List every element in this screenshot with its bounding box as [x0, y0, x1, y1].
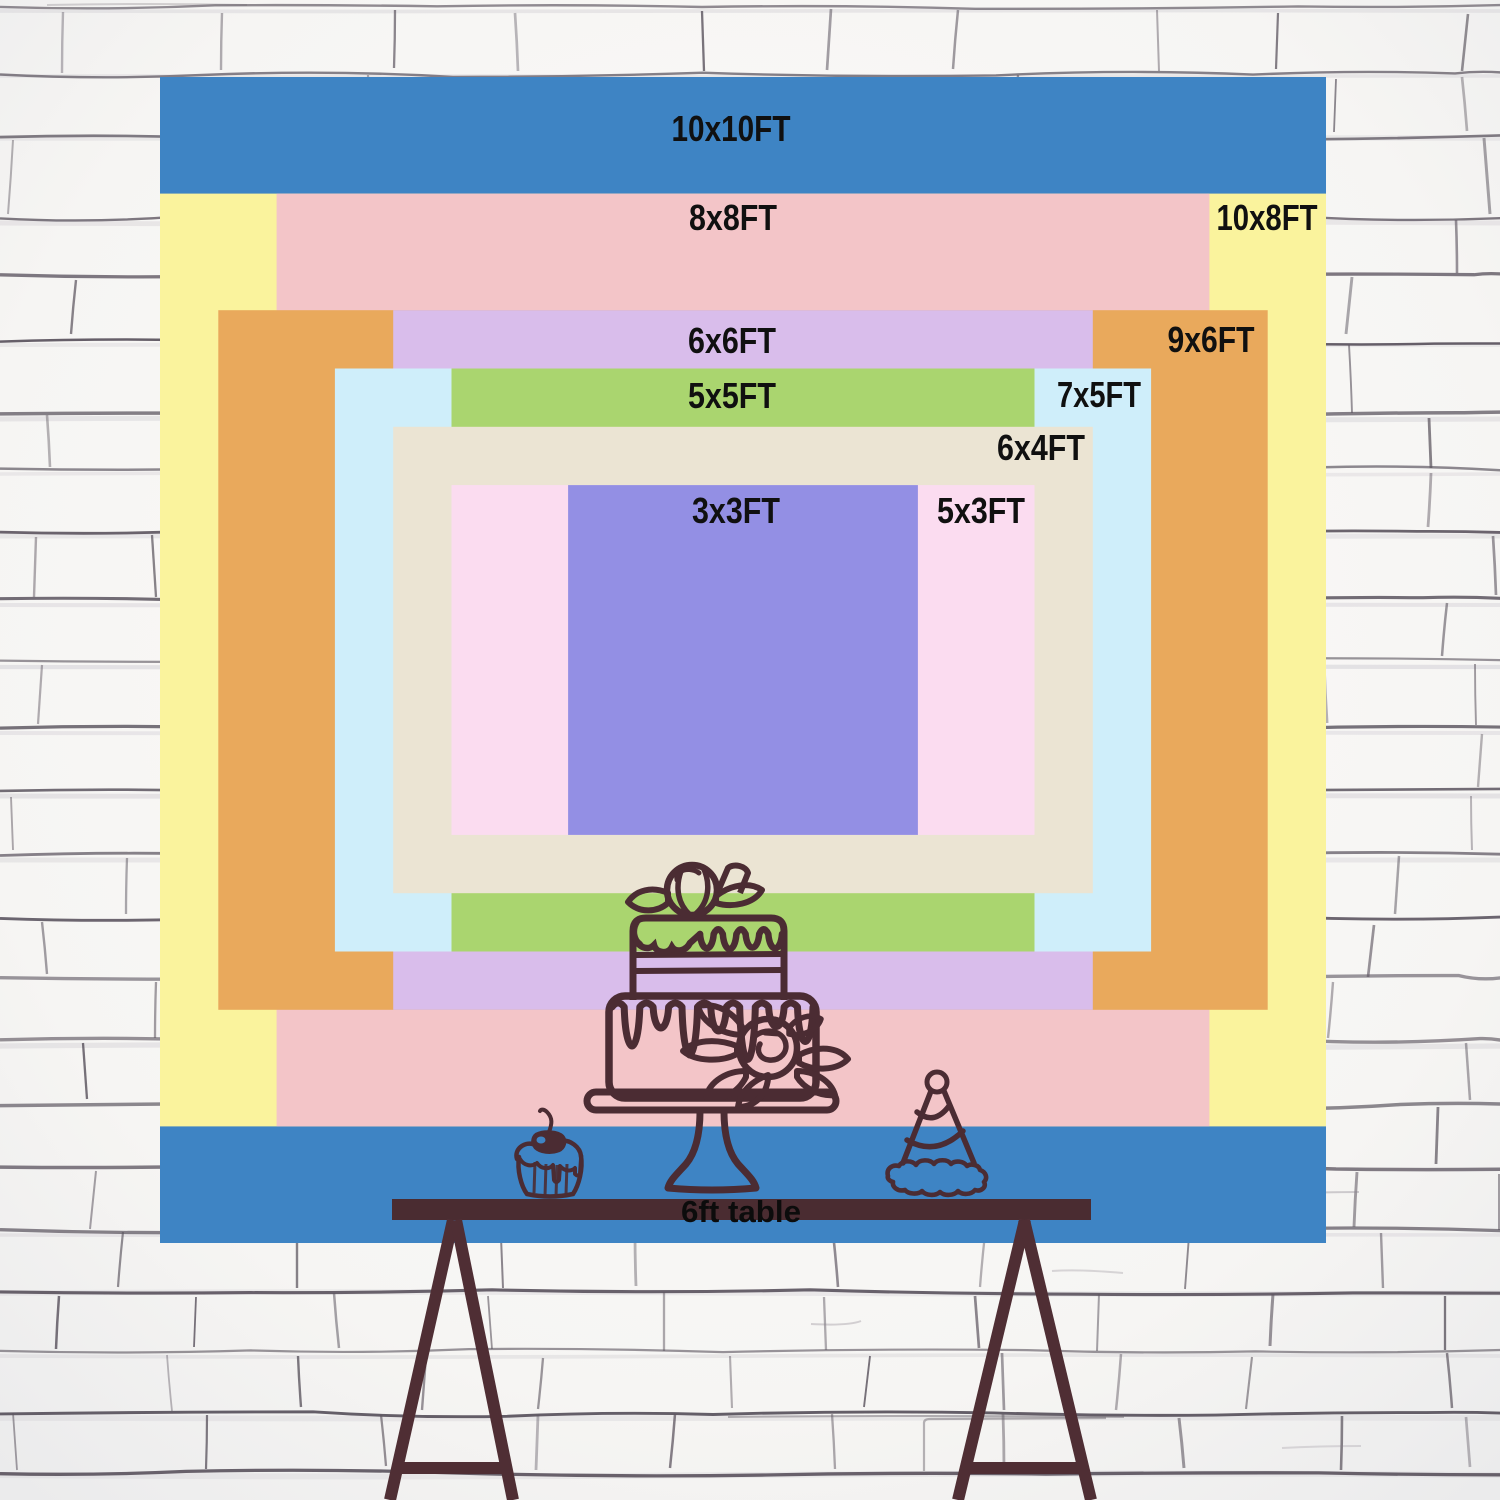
svg-text:8x8FT: 8x8FT — [689, 197, 777, 238]
svg-text:7x5FT: 7x5FT — [1057, 374, 1141, 415]
svg-text:10x8FT: 10x8FT — [1217, 197, 1318, 238]
svg-text:6ft table: 6ft table — [681, 1194, 801, 1229]
svg-text:6x6FT: 6x6FT — [688, 320, 776, 361]
svg-text:9x6FT: 9x6FT — [1168, 319, 1255, 360]
svg-text:5x5FT: 5x5FT — [688, 375, 776, 416]
svg-text:6x4FT: 6x4FT — [997, 427, 1085, 468]
svg-text:5x3FT: 5x3FT — [937, 490, 1025, 531]
svg-text:10x10FT: 10x10FT — [672, 108, 791, 149]
svg-text:3x3FT: 3x3FT — [692, 490, 780, 531]
